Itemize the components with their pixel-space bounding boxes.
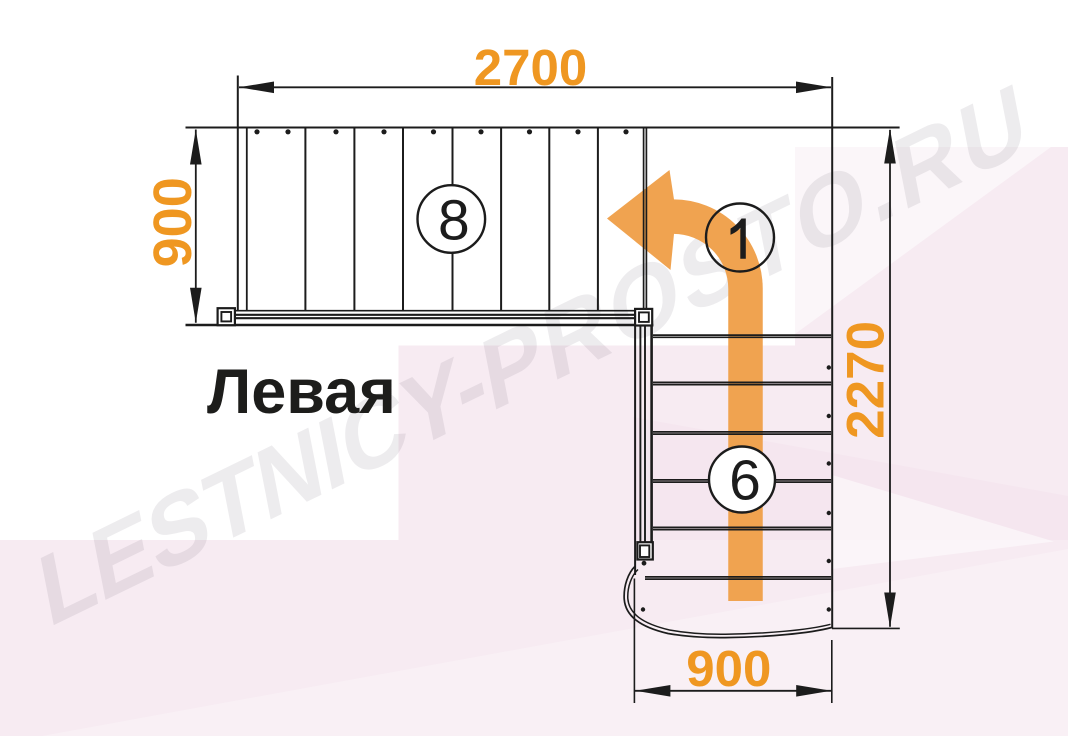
svg-text:Левая: Левая: [207, 357, 396, 427]
svg-text:2700: 2700: [474, 39, 587, 96]
svg-text:6: 6: [729, 449, 761, 513]
svg-text:8: 8: [438, 189, 470, 253]
svg-text:2270: 2270: [836, 321, 895, 439]
svg-text:900: 900: [143, 177, 203, 267]
svg-text:900: 900: [686, 640, 771, 697]
